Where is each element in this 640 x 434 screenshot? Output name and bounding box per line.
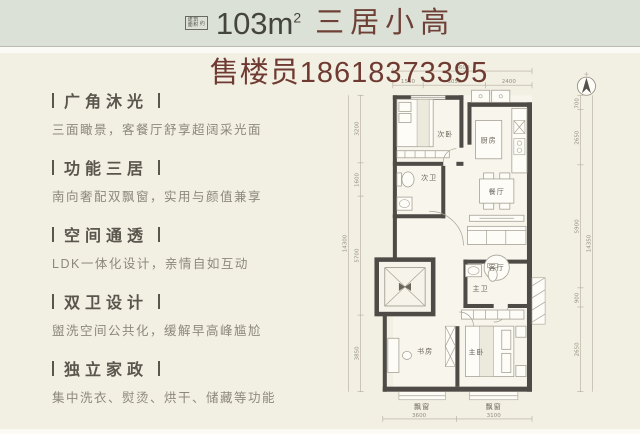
room-label-study: 书房 <box>417 346 433 355</box>
title-bar-icon <box>52 93 54 108</box>
title-bar-icon <box>158 294 160 309</box>
feature-desc: 盥洗空间公共化，缓解早高峰尴尬 <box>52 323 302 339</box>
dim-right-total: 14350 <box>586 234 592 252</box>
dim-left-2: 1600 <box>355 172 361 187</box>
dim-left-1: 3200 <box>355 121 361 136</box>
dim-top-1: 1550 <box>401 79 416 85</box>
feature-title: 功能三居 <box>64 155 148 179</box>
compass-icon <box>577 72 595 95</box>
page-title: 三居小高 <box>315 9 455 38</box>
room-label-dining: 餐厅 <box>489 187 505 196</box>
title-bar-icon <box>158 160 160 175</box>
feature-item: 双卫设计 盥洗空间公共化，缓解早高峰尴尬 <box>52 291 302 339</box>
badge-line2: 面积 <box>188 23 199 28</box>
feature-title-row: 功能三居 <box>52 157 302 177</box>
title-bar-icon <box>52 227 54 242</box>
dim-left-4: 3850 <box>355 346 361 361</box>
feature-item: 广角沐光 三面瞰景，客餐厅舒享超阔采光面 <box>52 90 302 138</box>
title-bar-icon <box>158 227 160 242</box>
building-area-badge: 建筑 面积 约 <box>185 16 208 31</box>
dim-right-1: 700 <box>574 98 580 109</box>
feature-desc: 三面瞰景，客餐厅舒享超阔采光面 <box>52 122 302 138</box>
bay-window-study <box>399 392 445 400</box>
dim-top-total: 6600 <box>455 65 470 71</box>
dim-right-5: 2650 <box>574 342 580 357</box>
floorplan-panel: 6600 1550 3050 2400 14300 <box>330 62 612 430</box>
dim-left-3: 5700 <box>355 248 361 263</box>
dim-left-total: 14300 <box>342 234 348 252</box>
equipment-platform <box>532 278 545 324</box>
feature-list: 广角沐光 三面瞰景，客餐厅舒享超阔采光面 功能三居 南向奢配双飘窗，实用与颜值兼… <box>52 90 302 425</box>
header-bar: 建筑 面积 约 103m2 三居小高 <box>0 0 640 47</box>
feature-title: 广角沐光 <box>64 88 148 112</box>
dim-top-2: 3050 <box>447 79 462 85</box>
feature-title: 空间通透 <box>64 222 148 246</box>
room-label-bay-study: 飘窗 <box>414 402 430 411</box>
feature-desc: 集中洗衣、熨烫、烘干、储藏等功能 <box>52 390 302 406</box>
room-label-master-bath: 主卫 <box>473 284 489 293</box>
feature-title: 双卫设计 <box>64 289 148 313</box>
dim-bottom: 3600 3100 <box>383 413 532 422</box>
dim-bottom-2: 3100 <box>487 413 502 419</box>
title-bar-icon <box>52 160 54 175</box>
dim-right-3: 5900 <box>574 219 580 234</box>
bottom-margin <box>0 429 640 434</box>
bay-window-master <box>469 392 517 400</box>
area-value: 103m2 <box>216 8 301 39</box>
header-divider <box>0 47 640 53</box>
badge-text: 建筑 面积 <box>188 18 199 29</box>
feature-desc: 南向奢配双飘窗，实用与颜值兼享 <box>52 189 302 205</box>
elevator-shaft <box>377 260 433 314</box>
room-label-bedroom2: 次卧 <box>437 130 453 139</box>
room-label-master: 主卧 <box>468 347 484 356</box>
dim-bottom-1: 3600 <box>412 413 427 419</box>
feature-title-row: 双卫设计 <box>52 291 302 311</box>
flyer-page: 建筑 面积 约 103m2 三居小高 售楼员18618373395 广角沐光 三… <box>0 0 640 434</box>
title-bar-icon <box>52 294 54 309</box>
dim-right: 700 2650 5900 900 2650 14350 <box>574 95 592 391</box>
title-bar-icon <box>52 361 54 376</box>
window-north <box>411 96 445 99</box>
feature-title: 独立家政 <box>64 356 148 380</box>
feature-item: 空间通透 LDK一体化设计，亲情自如互动 <box>52 224 302 272</box>
feature-item: 独立家政 集中洗衣、熨烫、烘干、储藏等功能 <box>52 358 302 406</box>
feature-title-row: 空间通透 <box>52 224 302 244</box>
badge-suffix: 约 <box>200 20 205 27</box>
room-label-kitchen: 厨房 <box>481 136 497 145</box>
floorplan-drawing: 6600 1550 3050 2400 14300 <box>330 62 612 430</box>
dim-right-2: 2650 <box>574 130 580 145</box>
feature-title-row: 广角沐光 <box>52 90 302 110</box>
dim-left: 14300 3200 1600 5700 3850 <box>342 95 363 391</box>
dim-top-3: 2400 <box>502 79 517 85</box>
feature-item: 功能三居 南向奢配双飘窗，实用与颜值兼享 <box>52 157 302 205</box>
title-bar-icon <box>158 361 160 376</box>
feature-title-row: 独立家政 <box>52 358 302 378</box>
room-label-living: 客厅 <box>489 263 505 272</box>
title-bar-icon <box>158 93 160 108</box>
feature-desc: LDK一体化设计，亲情自如互动 <box>52 256 302 272</box>
dim-right-4: 900 <box>574 292 580 303</box>
room-label-bay-master: 飘窗 <box>486 402 502 411</box>
area-superscript: 2 <box>293 9 301 25</box>
header-title-group: 建筑 面积 约 103m2 三居小高 <box>185 8 455 39</box>
dim-top: 6600 1550 3050 2400 <box>393 65 532 88</box>
room-label-bath2: 次卫 <box>421 173 437 182</box>
